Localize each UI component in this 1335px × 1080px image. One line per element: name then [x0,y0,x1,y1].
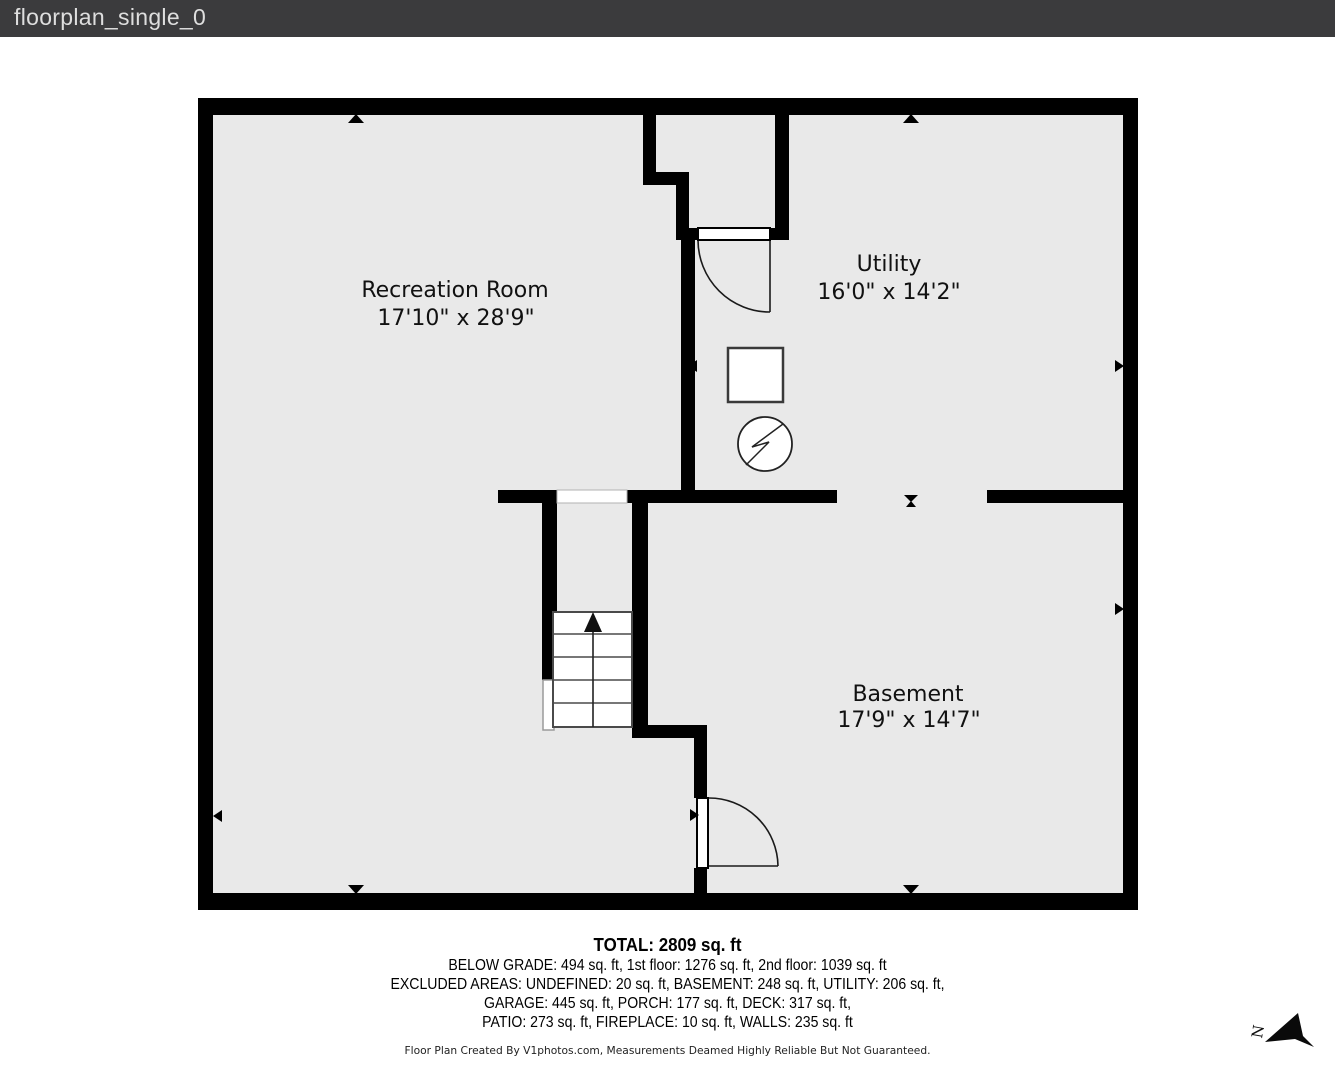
wall-chase-right [775,115,789,240]
basement-room-label: Basement [852,682,963,707]
recreation-room-label: Recreation Room [361,278,548,303]
door-panel [698,228,770,240]
wall-basement-door-upper [694,725,707,798]
floorplan-drawing: Recreation Room 17'10" x 28'9" Utility 1… [0,0,1335,1080]
disclaimer-text: Floor Plan Created By V1photos.com, Meas… [20,1044,1315,1057]
summary-line-3: GARAGE: 445 sq. ft, PORCH: 177 sq. ft, D… [80,994,1255,1013]
water-heater-icon [738,417,792,471]
stairs [543,612,632,730]
wall-outer-top [198,98,1138,115]
floor-area [213,115,1123,893]
wall-outer-bottom [198,893,1138,910]
area-summary: TOTAL: 2809 sq. ft BELOW GRADE: 494 sq. … [0,934,1335,1057]
recreation-room-dims: 17'10" x 28'9" [377,306,534,331]
wall-mid-center [627,490,837,503]
basement-room-dims: 17'9" x 14'7" [837,708,980,733]
wall-outer-left [198,98,213,910]
door-panel [697,798,708,868]
utility-room-label: Utility [857,252,922,277]
window-opening [557,490,627,503]
summary-total: TOTAL: 2809 sq. ft [40,934,1295,956]
wall-outer-right [1123,98,1138,910]
wall-mid-right [987,490,1123,503]
summary-line-1: BELOW GRADE: 494 sq. ft, 1st floor: 1276… [80,956,1255,975]
utility-room-dims: 16'0" x 14'2" [817,280,960,305]
furnace-icon [728,348,783,402]
summary-line-4: PATIO: 273 sq. ft, FIREPLACE: 10 sq. ft,… [80,1013,1255,1032]
wall-basement-door-lower [694,868,707,893]
wall-stair-right [632,490,648,738]
floorplan-page: floorplan_single_0 [0,0,1335,1080]
summary-line-2: EXCLUDED AREAS: UNDEFINED: 20 sq. ft, BA… [80,975,1255,994]
